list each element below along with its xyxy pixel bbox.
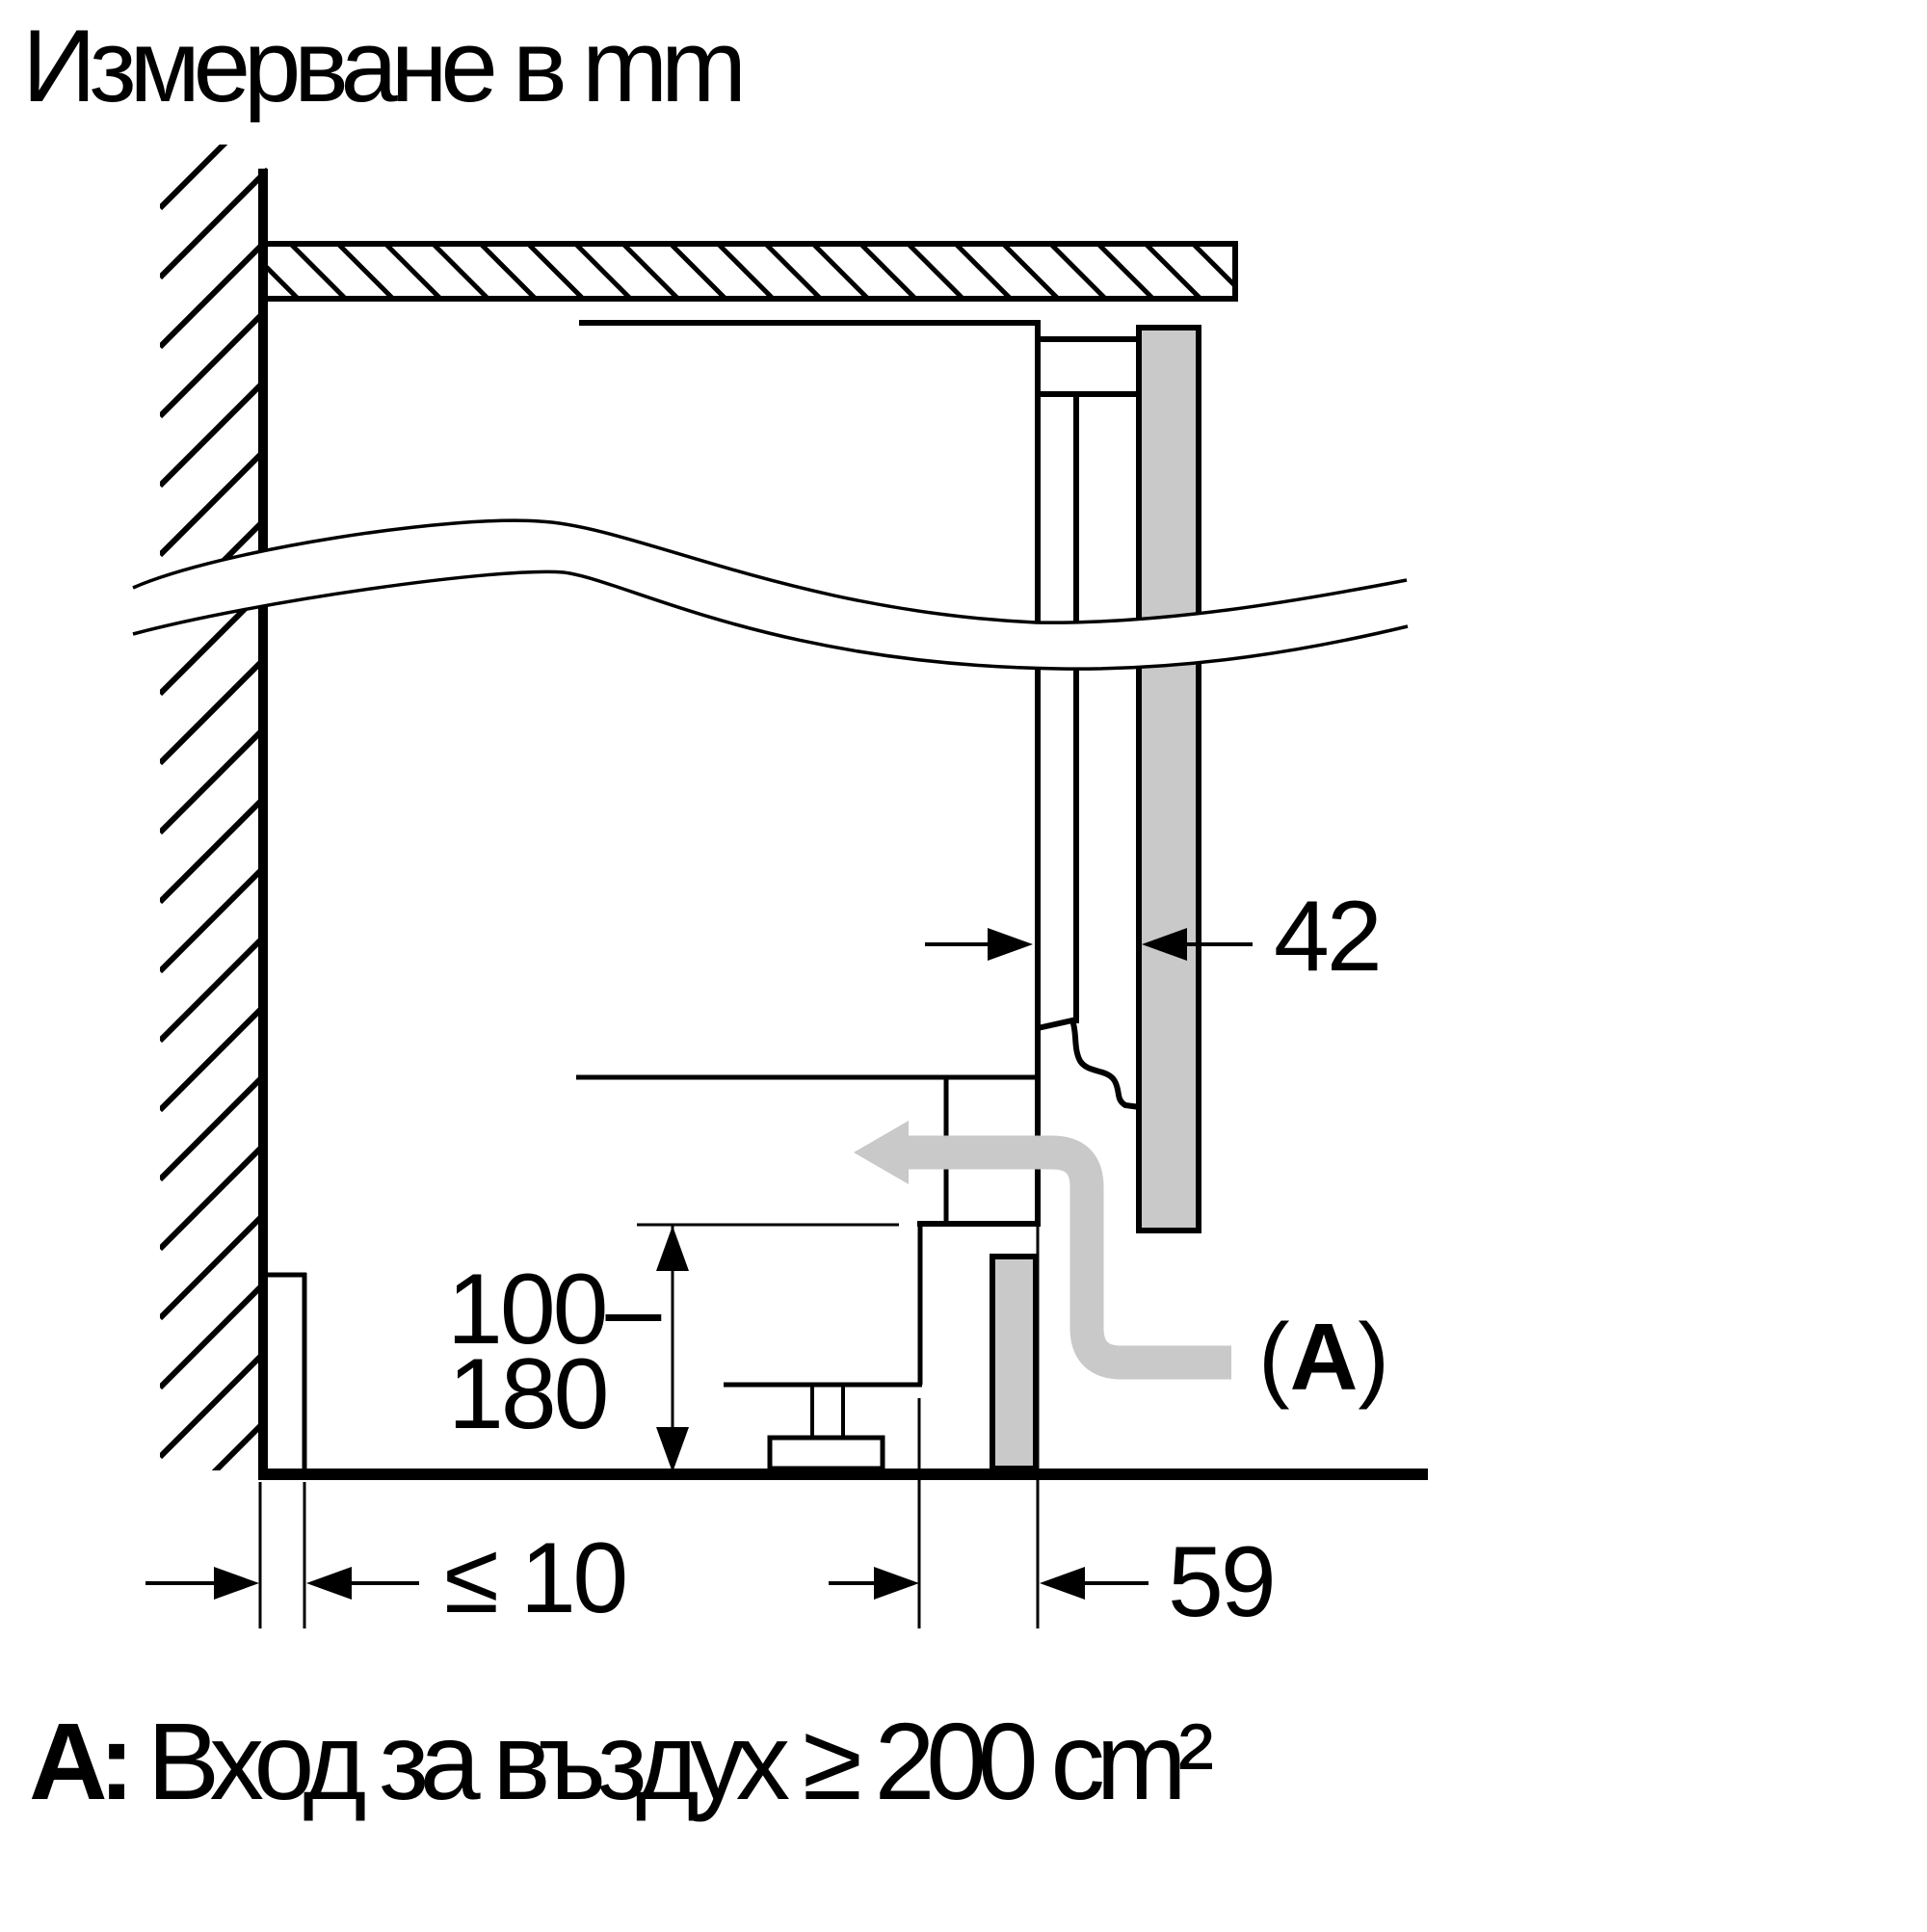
svg-text:≤ 10: ≤ 10 (444, 1522, 625, 1634)
svg-text:Измерване в mm: Измерване в mm (22, 8, 741, 123)
svg-text:59: 59 (1168, 1526, 1274, 1638)
svg-text:42: 42 (1274, 881, 1380, 992)
svg-text:180: 180 (448, 1338, 607, 1450)
svg-text:(A): (A) (1258, 1304, 1389, 1410)
svg-text:A: Вход за въздух ≥ 200 cm²: A: Вход за въздух ≥ 200 cm² (29, 1701, 1212, 1822)
